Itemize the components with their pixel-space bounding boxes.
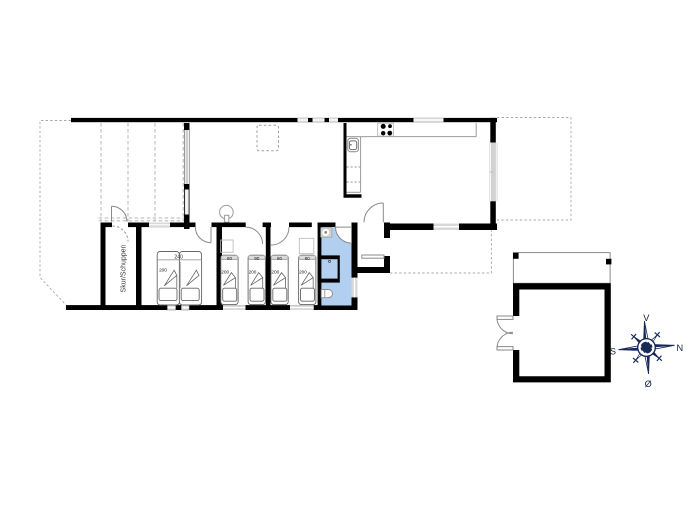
svg-text:S: S xyxy=(610,347,616,357)
svg-text:200: 200 xyxy=(271,269,279,274)
svg-text:200: 200 xyxy=(159,268,167,273)
svg-text:N: N xyxy=(676,343,683,353)
svg-text:Skur/Schuppen: Skur/Schuppen xyxy=(121,244,128,292)
svg-text:200: 200 xyxy=(221,269,229,274)
svg-text:90: 90 xyxy=(254,256,260,261)
svg-text:Ø: Ø xyxy=(645,379,652,389)
svg-text:200: 200 xyxy=(299,269,307,274)
svg-text:V: V xyxy=(643,313,650,323)
svg-text:200: 200 xyxy=(249,269,257,274)
svg-text:80: 80 xyxy=(227,256,233,261)
svg-text:80: 80 xyxy=(305,256,311,261)
svg-text:90: 90 xyxy=(277,256,283,261)
svg-text:240: 240 xyxy=(174,255,183,261)
